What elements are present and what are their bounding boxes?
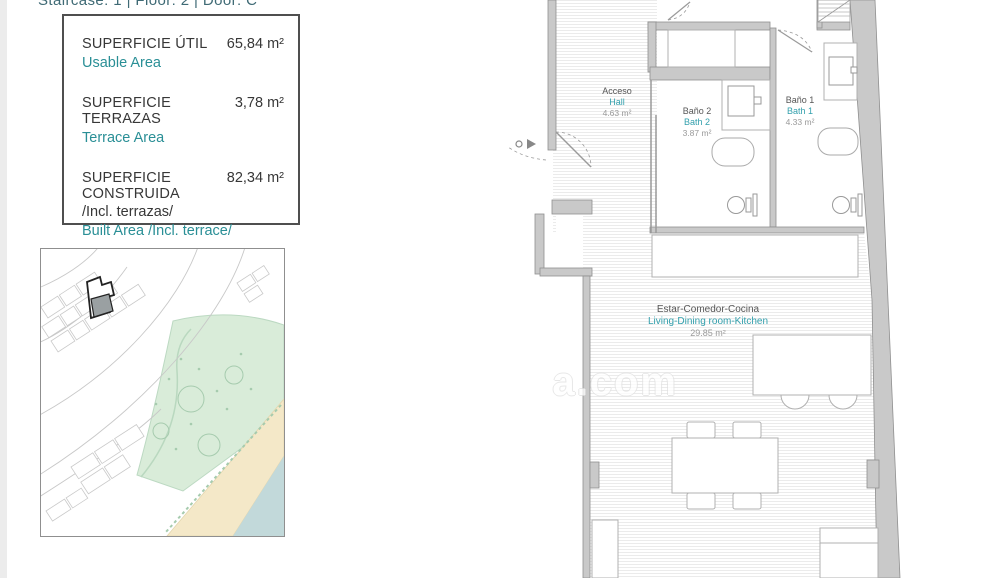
built-area-label-en: Built Area /Incl. terrace/ — [82, 223, 284, 239]
svg-text:Bath 1: Bath 1 — [787, 106, 813, 116]
apartment-floor-plan: Acceso Hall 4.63 m² Baño 2 Bath 2 3.87 m… — [500, 0, 1000, 578]
stairwell — [818, 0, 850, 22]
built-area-label-es: SUPERFICIE CONSTRUIDA — [82, 170, 227, 202]
alcove-floor — [556, 215, 583, 268]
kitchen-island — [753, 335, 871, 395]
svg-text:4.33 m²: 4.33 m² — [786, 117, 815, 127]
svg-text:Acceso: Acceso — [602, 86, 632, 96]
floor-plan-page: Staircase: 1 | Floor: 2 | Door: C SUPERF… — [0, 0, 1000, 578]
unit-header: Staircase: 1 | Floor: 2 | Door: C — [38, 0, 257, 9]
entrance-arrow-icon — [516, 139, 536, 149]
built-area-value: 82,34 m² — [227, 170, 284, 186]
surface-areas-box: SUPERFICIE ÚTIL 65,84 m² Usable Area SUP… — [62, 14, 300, 225]
bath1-tub — [818, 128, 858, 155]
bath1-toilet — [833, 194, 863, 216]
dining-chair — [733, 422, 761, 438]
bath2-faucet — [754, 97, 761, 104]
svg-text:3.87 m²: 3.87 m² — [683, 128, 712, 138]
living-floor — [583, 233, 877, 578]
built-area-row: SUPERFICIE CONSTRUIDA 82,34 m² /Incl. te… — [82, 170, 284, 239]
closet — [668, 30, 735, 67]
location-map-svg — [41, 249, 284, 536]
bath2-toilet — [728, 194, 758, 216]
terrace-area-label-es: SUPERFICIE TERRAZAS — [82, 95, 235, 127]
svg-text:Baño 2: Baño 2 — [683, 106, 712, 116]
kitchen-counter — [652, 235, 858, 277]
scan-edge — [0, 0, 7, 578]
svg-text:Living-Dining room-Kitchen: Living-Dining room-Kitchen — [648, 316, 768, 327]
terrace-area-value: 3,78 m² — [235, 95, 284, 111]
dining-chair — [733, 493, 761, 509]
usable-area-label-es: SUPERFICIE ÚTIL — [82, 36, 207, 52]
dining-table — [672, 438, 778, 493]
floor-plan-svg: Acceso Hall 4.63 m² Baño 2 Bath 2 3.87 m… — [500, 0, 1000, 578]
room-label-bath1: Baño 1 Bath 1 4.33 m² — [786, 95, 815, 127]
bath1-faucet — [851, 67, 857, 73]
bath1-sink — [829, 57, 853, 85]
usable-area-label-en: Usable Area — [82, 55, 284, 71]
location-map — [40, 248, 285, 537]
svg-text:Baño 1: Baño 1 — [786, 95, 815, 105]
room-label-bath2: Baño 2 Bath 2 3.87 m² — [683, 106, 712, 138]
dining-chair — [687, 493, 715, 509]
usable-area-value: 65,84 m² — [227, 36, 284, 52]
tv-unit — [592, 520, 618, 578]
svg-text:29.85 m²: 29.85 m² — [690, 328, 726, 338]
bath2-sink — [728, 86, 754, 116]
built-area-subtitle: /Incl. terrazas/ — [82, 204, 284, 220]
terrace-area-label-en: Terrace Area — [82, 130, 284, 146]
svg-text:Bath 2: Bath 2 — [684, 117, 710, 127]
terrace-area-row: SUPERFICIE TERRAZAS 3,78 m² Terrace Area — [82, 95, 284, 146]
highlighted-building — [87, 277, 114, 318]
svg-text:Hall: Hall — [609, 97, 625, 107]
dining-chair — [687, 422, 715, 438]
svg-text:Estar-Comedor-Cocina: Estar-Comedor-Cocina — [657, 304, 760, 315]
usable-area-row: SUPERFICIE ÚTIL 65,84 m² Usable Area — [82, 36, 284, 71]
bath2-tub — [712, 138, 754, 166]
sofa — [820, 528, 878, 578]
svg-text:4.63 m²: 4.63 m² — [603, 108, 632, 118]
